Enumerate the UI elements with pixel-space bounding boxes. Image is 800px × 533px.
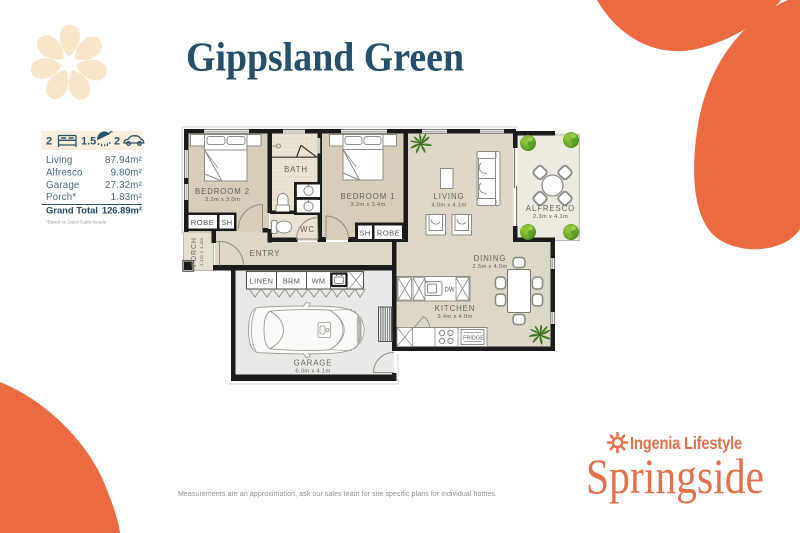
svg-text:GARAGE: GARAGE — [294, 359, 333, 368]
svg-text:Living: Living — [46, 155, 73, 166]
svg-text:WM: WM — [312, 277, 326, 286]
svg-text:Springside: Springside — [586, 448, 764, 504]
svg-text:Gippsland Green: Gippsland Green — [186, 34, 464, 80]
svg-text:27.32m²: 27.32m² — [105, 180, 143, 191]
svg-text:Measurements are an approximat: Measurements are an approximation, ask o… — [178, 489, 497, 498]
svg-text:BEDROOM 1: BEDROOM 1 — [341, 192, 396, 201]
svg-text:KITCHEN: KITCHEN — [435, 304, 476, 313]
svg-text:Porch*: Porch* — [46, 192, 76, 203]
svg-text:2.3m x 4.1m: 2.3m x 4.1m — [533, 214, 568, 220]
svg-text:*Based on Dutch Gable facade: *Based on Dutch Gable facade — [46, 220, 107, 225]
svg-text:87.94m²: 87.94m² — [105, 155, 143, 166]
svg-text:DINING: DINING — [474, 254, 507, 263]
svg-text:PORCH: PORCH — [191, 237, 198, 267]
svg-text:3.1m x 3.0m: 3.1m x 3.0m — [205, 197, 240, 203]
svg-text:SH: SH — [221, 218, 232, 227]
svg-text:ROBE: ROBE — [377, 229, 401, 238]
svg-text:BRM: BRM — [283, 277, 301, 286]
svg-text:1.1m x 1.4m: 1.1m x 1.4m — [199, 238, 205, 267]
svg-text:WC: WC — [300, 225, 315, 234]
svg-text:9.80m²: 9.80m² — [111, 167, 143, 178]
svg-text:2.5m x 4.0m: 2.5m x 4.0m — [472, 264, 507, 270]
svg-text:BEDROOM 2: BEDROOM 2 — [195, 187, 250, 196]
svg-text:Alfresco: Alfresco — [46, 167, 83, 178]
svg-text:LIVING: LIVING — [434, 192, 465, 201]
svg-text:LINEN: LINEN — [250, 277, 274, 286]
svg-text:ALFRESCO: ALFRESCO — [526, 204, 575, 213]
svg-text:6.0m x 4.1m: 6.0m x 4.1m — [295, 369, 330, 375]
svg-text:ROBE: ROBE — [191, 218, 215, 227]
svg-text:2: 2 — [46, 136, 52, 148]
svg-text:2: 2 — [114, 136, 120, 148]
svg-text:FRIDGE: FRIDGE — [463, 336, 484, 342]
svg-text:4.0m x 4.1m: 4.0m x 4.1m — [431, 203, 466, 209]
svg-text:3.4m x 4.0m: 3.4m x 4.0m — [437, 314, 472, 320]
svg-text:DW: DW — [445, 288, 455, 294]
svg-text:ENTRY: ENTRY — [250, 249, 281, 258]
svg-text:Garage: Garage — [46, 180, 80, 191]
svg-text:1.5: 1.5 — [81, 136, 96, 148]
svg-text:3.2m x 3.4m: 3.2m x 3.4m — [350, 202, 385, 208]
svg-text:BATH: BATH — [284, 165, 308, 174]
svg-text:1.83m²: 1.83m² — [111, 192, 143, 203]
svg-text:Grand Total: Grand Total — [46, 205, 98, 216]
svg-text:SH: SH — [359, 229, 370, 238]
svg-text:126.89m²: 126.89m² — [102, 205, 142, 216]
